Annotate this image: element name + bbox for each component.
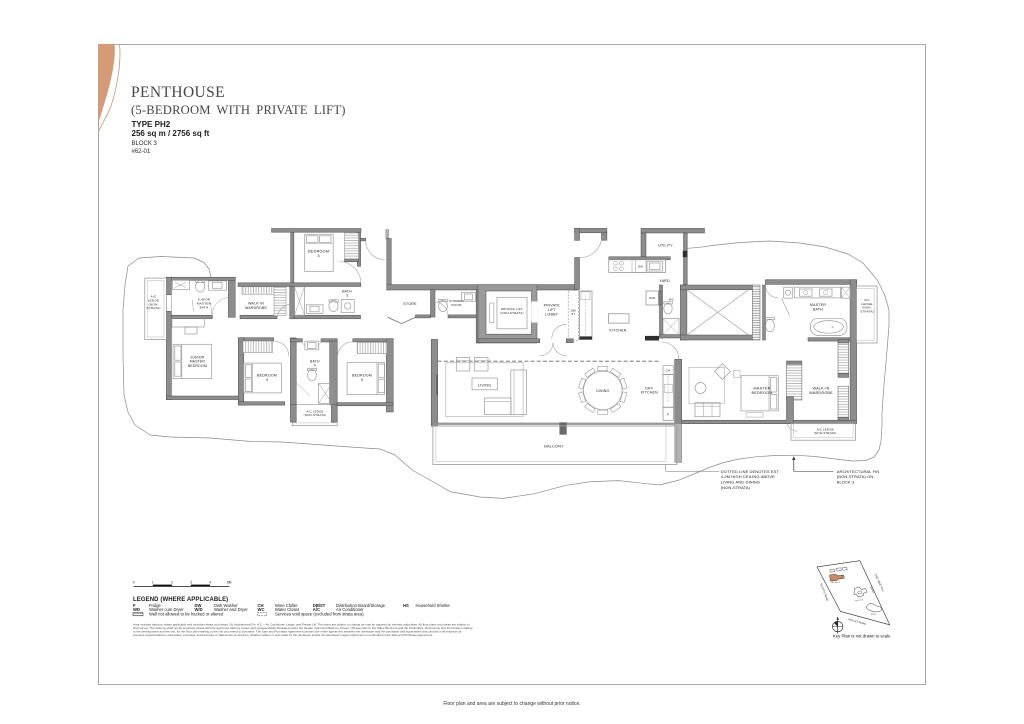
svg-text:DRY: DRY bbox=[645, 386, 654, 390]
svg-text:LIVING AND DINING: LIVING AND DINING bbox=[721, 480, 760, 485]
svg-text:3: 3 bbox=[346, 294, 348, 298]
svg-text:BATH: BATH bbox=[813, 307, 823, 311]
svg-text:LIVING: LIVING bbox=[478, 383, 492, 387]
svg-text:(NON-STRATA): (NON-STRATA) bbox=[814, 431, 837, 435]
svg-text:BEDROOM: BEDROOM bbox=[188, 364, 207, 368]
svg-text:(NON-STRATA): (NON-STRATA) bbox=[304, 413, 327, 417]
svg-text:BLOCK 1: BLOCK 1 bbox=[855, 599, 863, 602]
svg-text:HULLET ROAD: HULLET ROAD bbox=[848, 617, 867, 626]
svg-text:previous representations, warr: previous representations, warranties, pr… bbox=[133, 633, 433, 637]
svg-text:Services void space (excluded: Services void space (excluded from strat… bbox=[275, 612, 364, 617]
svg-text:KITCHEN: KITCHEN bbox=[641, 391, 658, 395]
svg-text:WARDROBE: WARDROBE bbox=[245, 306, 268, 310]
svg-text:2: 2 bbox=[171, 580, 173, 584]
svg-text:LOBBY: LOBBY bbox=[545, 312, 558, 316]
svg-text:1: 1 bbox=[152, 580, 154, 584]
svg-text:CH: CH bbox=[666, 369, 671, 373]
svg-text:ONE TREE HILL: ONE TREE HILL bbox=[873, 573, 885, 593]
svg-text:W/D: W/D bbox=[649, 296, 656, 300]
svg-text:(ROAD): (ROAD) bbox=[869, 586, 875, 594]
svg-text:STRATA): STRATA) bbox=[146, 306, 160, 310]
svg-text:4: 4 bbox=[266, 378, 268, 382]
svg-text:WD: WD bbox=[133, 607, 140, 612]
svg-text:KITCHEN: KITCHEN bbox=[609, 329, 626, 333]
svg-text:WC: WC bbox=[258, 607, 265, 612]
svg-text:(NON-STRATA) ON: (NON-STRATA) ON bbox=[837, 474, 874, 479]
svg-text:STORE: STORE bbox=[403, 302, 417, 306]
svg-text:3: 3 bbox=[190, 580, 192, 584]
svg-text:5: 5 bbox=[361, 378, 363, 382]
svg-text:Key Plan is not drawn to scale: Key Plan is not drawn to scale bbox=[833, 634, 891, 639]
svg-text:Household Shelter: Household Shelter bbox=[416, 603, 451, 608]
svg-text:DINING: DINING bbox=[596, 389, 609, 393]
svg-text:BATH: BATH bbox=[200, 305, 209, 309]
svg-text:MASTER: MASTER bbox=[810, 303, 826, 307]
svg-text:3: 3 bbox=[318, 254, 320, 258]
svg-text:BEDROOM: BEDROOM bbox=[257, 374, 277, 378]
svg-text:BEDROOM: BEDROOM bbox=[751, 391, 772, 395]
svg-text:4: 4 bbox=[209, 580, 211, 584]
svg-text:WC: WC bbox=[669, 297, 675, 301]
svg-text:BLOCK 3: BLOCK 3 bbox=[837, 480, 855, 485]
svg-text:BALCONY: BALCONY bbox=[544, 444, 564, 448]
svg-text:BLOCK 3: BLOCK 3 bbox=[831, 582, 840, 584]
svg-text:(NON-STRATA): (NON-STRATA) bbox=[500, 311, 523, 315]
svg-text:BEDROOM: BEDROOM bbox=[308, 250, 329, 254]
svg-text:POOL: POOL bbox=[871, 614, 876, 616]
svg-text:LIFT: LIFT bbox=[548, 308, 557, 312]
svg-text:UTILITY: UTILITY bbox=[658, 244, 673, 248]
svg-text:DW: DW bbox=[638, 264, 643, 268]
svg-text:HS: HS bbox=[403, 603, 409, 608]
svg-text:WALK-IN: WALK-IN bbox=[812, 387, 829, 391]
svg-text:ST: ST bbox=[571, 312, 575, 316]
svg-text:PRIVATE: PRIVATE bbox=[544, 304, 561, 308]
svg-text:0: 0 bbox=[133, 580, 135, 584]
svg-text:MASTER: MASTER bbox=[753, 387, 770, 391]
svg-text:4.2M HIGH CEILING ABOVE: 4.2M HIGH CEILING ABOVE bbox=[721, 474, 775, 479]
svg-text:4: 4 bbox=[314, 364, 316, 368]
svg-text:WALK-IN: WALK-IN bbox=[248, 302, 264, 306]
svg-text:WARDROBE: WARDROBE bbox=[809, 391, 833, 395]
svg-text:STRATA): STRATA) bbox=[860, 309, 874, 313]
svg-text:ROOM: ROOM bbox=[451, 303, 461, 307]
svg-text:ARCHITECTURAL FIN: ARCHITECTURAL FIN bbox=[837, 469, 880, 474]
svg-text:SCOTTS ROAD: SCOTTS ROAD bbox=[819, 583, 830, 602]
svg-text:5M: 5M bbox=[227, 580, 232, 584]
svg-text:F: F bbox=[667, 412, 669, 416]
svg-text:BEDROOM: BEDROOM bbox=[352, 374, 372, 378]
svg-text:(NON-STRATA): (NON-STRATA) bbox=[721, 485, 751, 490]
svg-text:DOTTED LINE DENOTES EST: DOTTED LINE DENOTES EST bbox=[721, 469, 780, 474]
svg-text:YARD: YARD bbox=[659, 279, 670, 283]
svg-text:Wall not allowed to be hacked: Wall not allowed to be hacked or altered bbox=[149, 612, 224, 617]
